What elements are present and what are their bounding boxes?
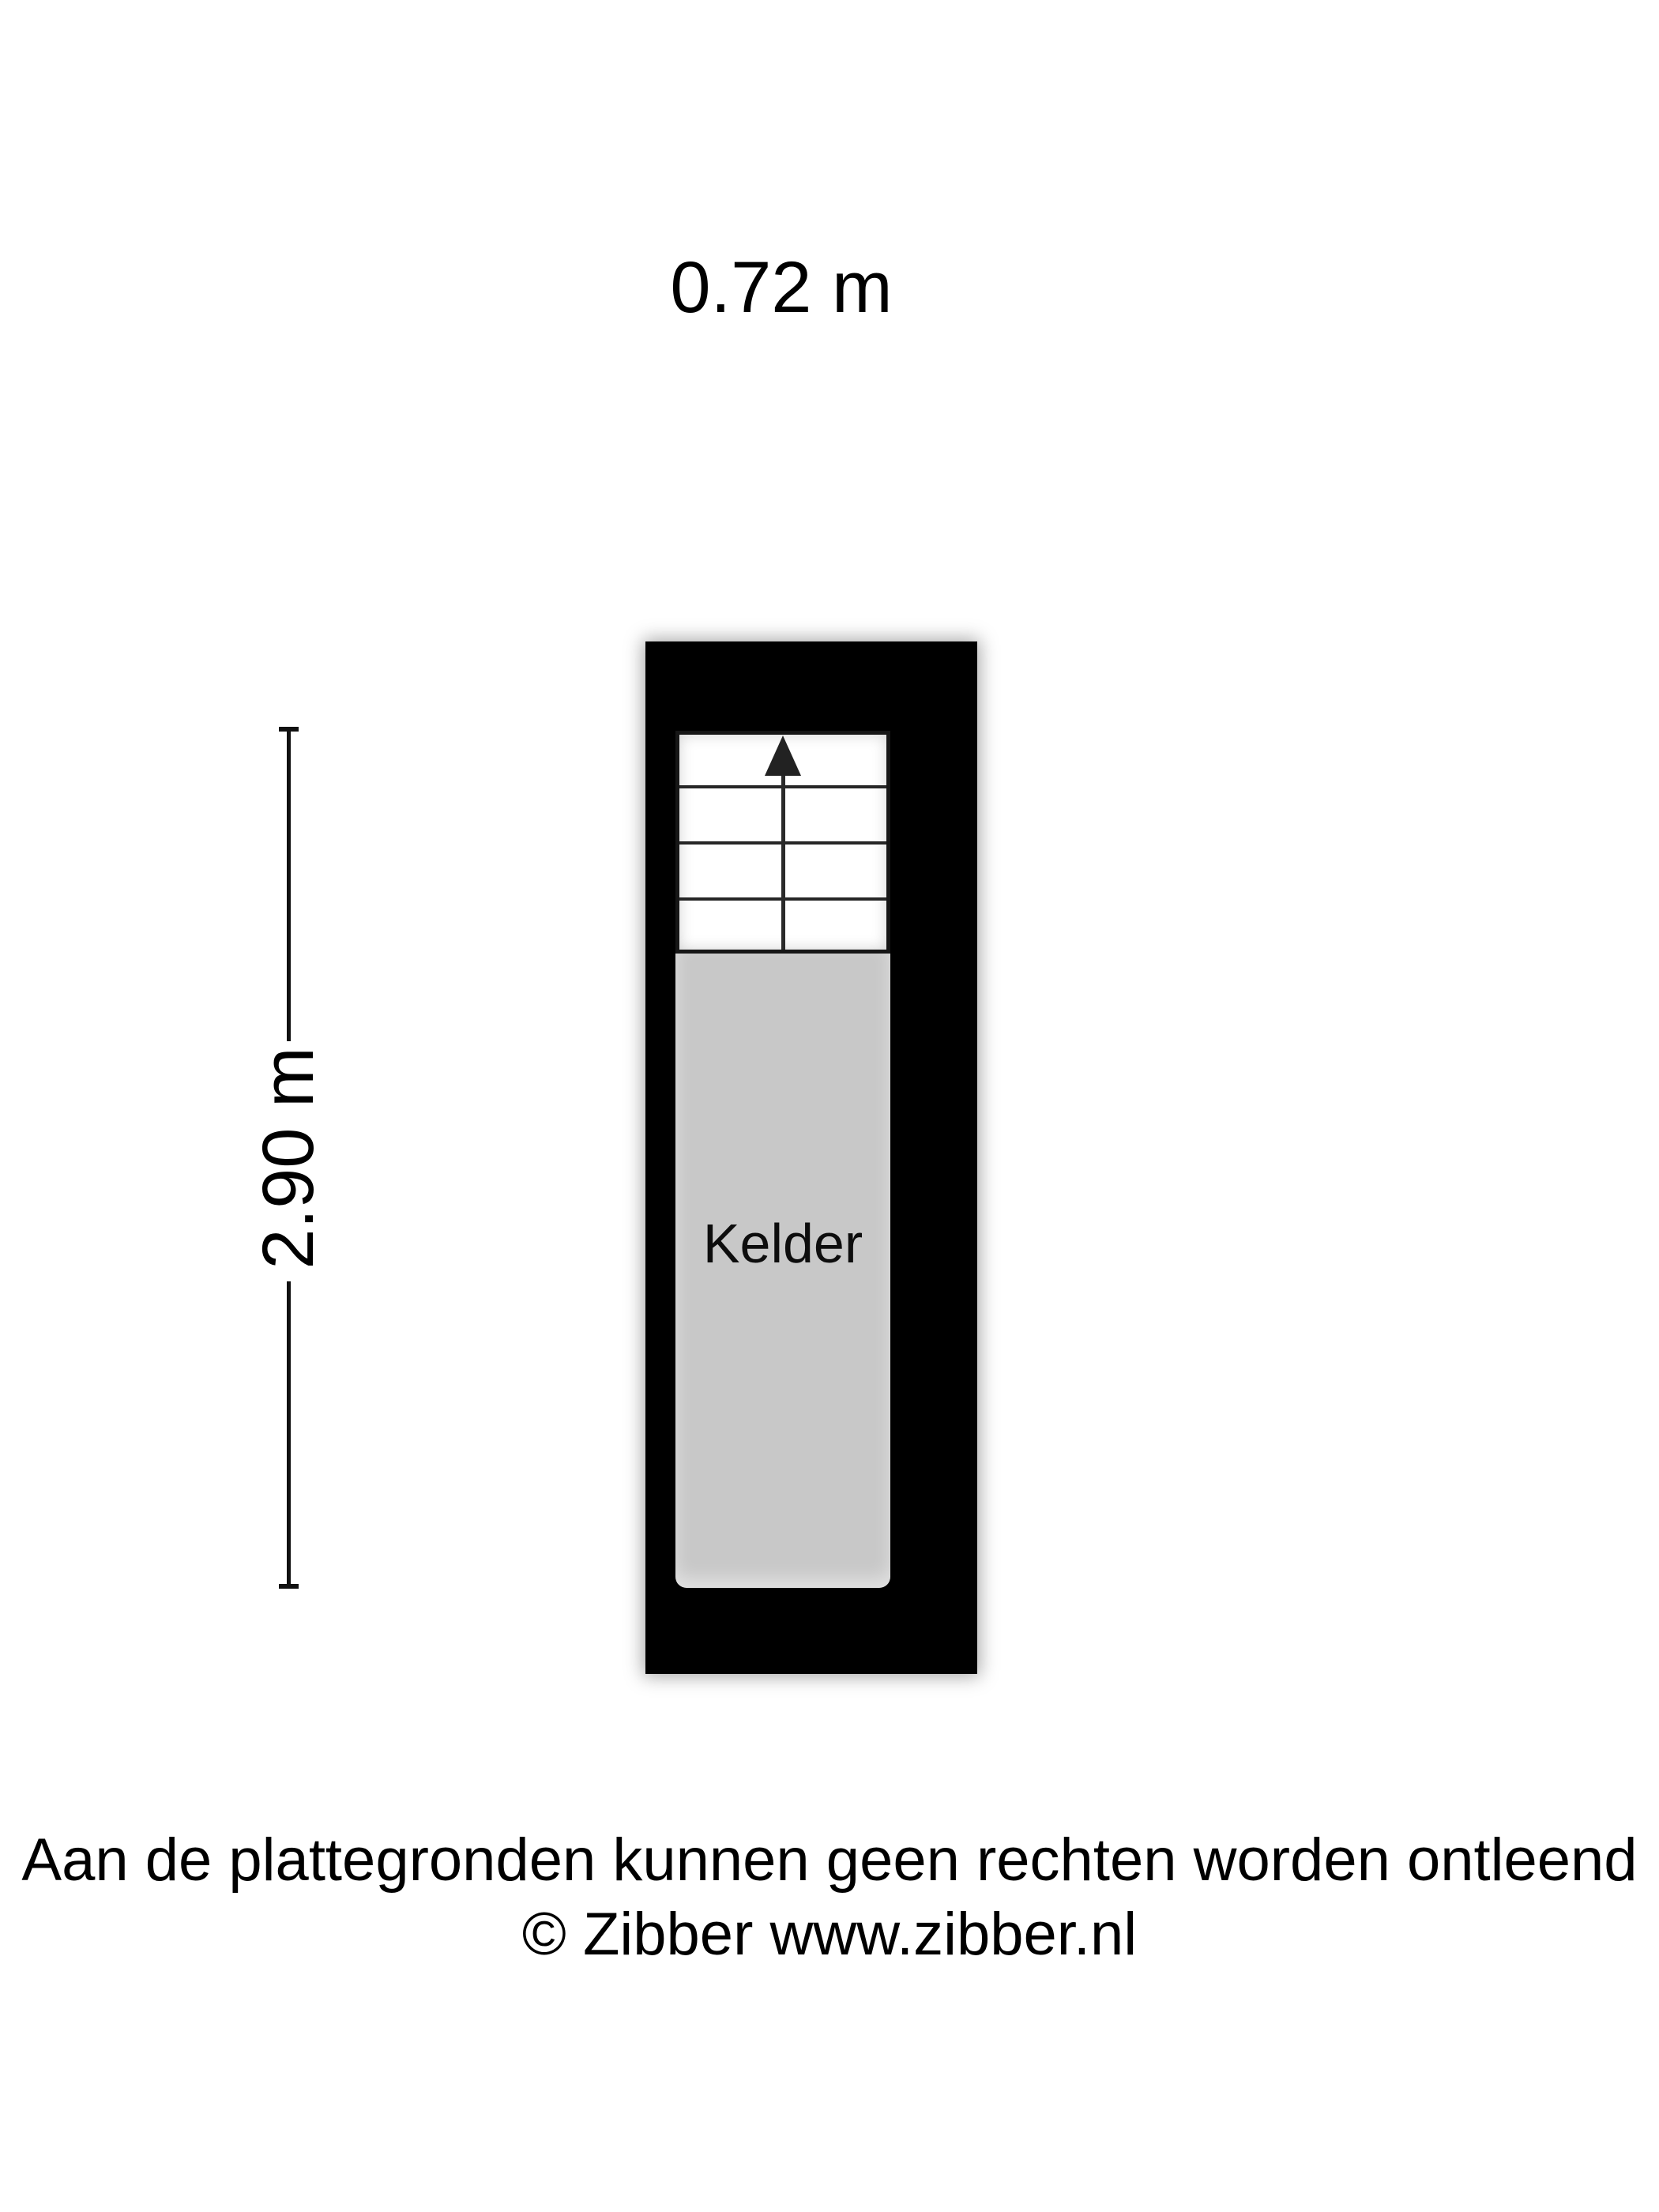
disclaimer-line-2: © Zibber www.zibber.nl — [0, 1898, 1659, 1972]
dimension-line-upper-segment — [287, 728, 291, 1041]
floorplan-interior: Kelder — [675, 731, 890, 1588]
disclaimer: Aan de plattegronden kunnen geen rechten… — [0, 1823, 1659, 1972]
stairs-up-arrow-icon — [765, 735, 801, 776]
dimension-cap-bottom — [279, 1584, 299, 1589]
disclaimer-line-1: Aan de plattegronden kunnen geen rechten… — [0, 1823, 1659, 1898]
floorplan-walls: Kelder — [645, 641, 977, 1674]
room-floor: Kelder — [675, 954, 890, 1588]
staircase — [675, 731, 890, 954]
height-dimension-label: 2.90 m — [252, 1047, 325, 1269]
room-name-label: Kelder — [675, 1216, 890, 1271]
stair-direction-line — [781, 773, 785, 950]
width-dimension-label: 0.72 m — [670, 251, 892, 324]
dimension-line-lower-segment — [287, 1281, 291, 1586]
floorplan-page: 0.72 m 2.90 m Kelder Aan de plattegronde… — [0, 0, 1659, 2212]
